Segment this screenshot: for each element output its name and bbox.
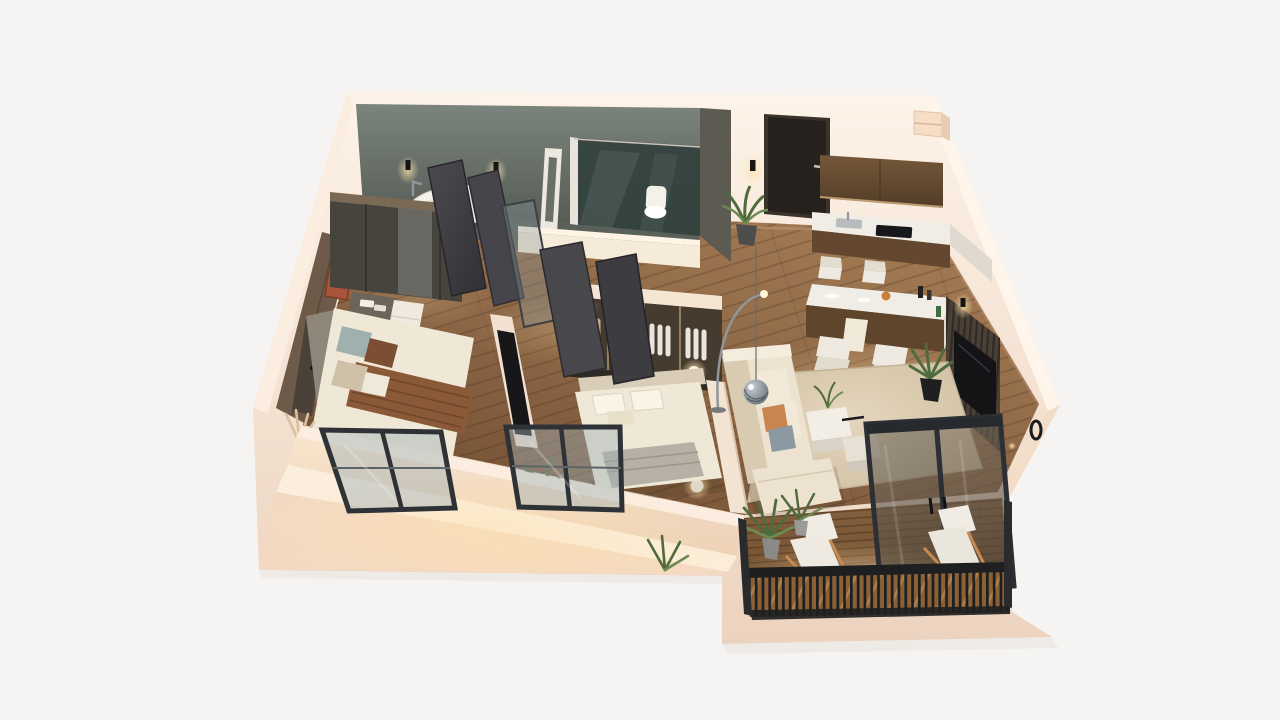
decor-bottle-green <box>936 306 941 317</box>
entry-plant-pot <box>736 224 757 246</box>
shower-glass-partition <box>570 137 700 236</box>
decor-bottle-2 <box>927 290 932 300</box>
railing-right-return <box>1004 500 1012 608</box>
floorplan-stage <box>0 0 1280 720</box>
fruit-bowl <box>882 292 891 301</box>
towels <box>360 299 375 307</box>
wardrobe-mirror-panel <box>398 208 432 298</box>
bathroom-sconce-1 <box>397 156 419 184</box>
decor-bottle-1 <box>918 286 923 298</box>
shower-frame-post <box>570 137 578 225</box>
floorplan-render <box>0 0 1280 720</box>
toilet <box>644 185 668 219</box>
palm-pot-2 <box>794 520 808 536</box>
bathroom-divider-column <box>700 108 731 262</box>
door-handle-icon <box>814 166 820 167</box>
bar-chair-back-2 <box>862 260 886 284</box>
media-wall-sconce <box>953 293 973 319</box>
glass-door-handle-icon <box>930 498 932 514</box>
bar-chair-back-1 <box>818 256 842 280</box>
entry-sconce <box>741 154 765 186</box>
window-bedroom2 <box>506 427 622 510</box>
